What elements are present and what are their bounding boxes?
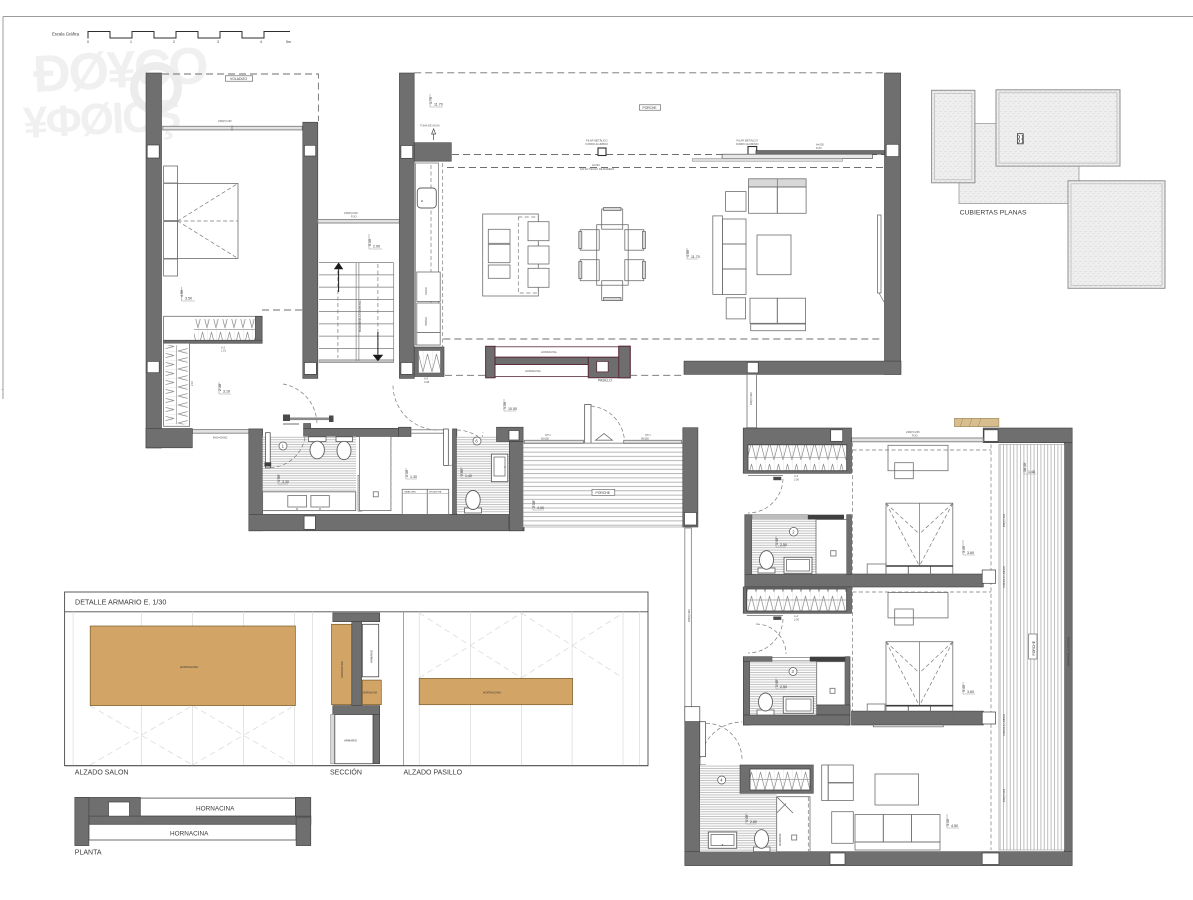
svg-text:0: 0 — [87, 40, 89, 44]
svg-text:ALZADO PASILLO: ALZADO PASILLO — [404, 770, 463, 777]
svg-text:230(P)=002: 230(P)=002 — [1003, 513, 1006, 527]
svg-text:2.50: 2.50 — [780, 543, 787, 547]
svg-text:BARANDILLA CRISTAL: BARANDILLA CRISTAL — [358, 300, 362, 332]
svg-text:230(P)=200: 230(P)=200 — [344, 211, 358, 215]
svg-text:1.30: 1.30 — [503, 402, 507, 409]
svg-text:DETALLE ARMARIO E. 1/30: DETALLE ARMARIO E. 1/30 — [75, 598, 166, 607]
svg-text:5.10: 5.10 — [368, 239, 372, 246]
svg-text:HORNACINA: HORNACINA — [340, 661, 344, 678]
svg-text:2.00: 2.00 — [373, 245, 380, 249]
svg-text:PASILLO: PASILLO — [598, 379, 612, 383]
svg-text:BARANDILLA CRISTAL: BARANDILLA CRISTAL — [1067, 636, 1071, 666]
svg-text:1.30: 1.30 — [410, 475, 417, 479]
svg-text:1.10: 1.10 — [221, 349, 227, 353]
svg-text:TOMA DE AGUA: TOMA DE AGUA — [420, 124, 440, 128]
svg-text:230(P)=002: 230(P)=002 — [1003, 788, 1006, 802]
svg-text:0.48: 0.48 — [424, 380, 430, 384]
svg-text:HORNACINA: HORNACINA — [363, 692, 378, 695]
svg-text:1.48: 1.48 — [1028, 470, 1035, 474]
svg-text:4: 4 — [260, 40, 262, 44]
svg-text:230(P)=110: 230(P)=110 — [750, 391, 753, 405]
svg-text:2.00: 2.00 — [794, 617, 800, 621]
svg-text:PORCHE: PORCHE — [596, 491, 611, 495]
svg-text:PILAR METÁLICO: PILAR METÁLICO — [586, 139, 607, 143]
svg-text:60/150: 60/150 — [541, 436, 549, 440]
svg-text:2.80: 2.80 — [750, 820, 757, 824]
svg-text:3.10: 3.10 — [946, 819, 950, 826]
svg-text:A-4: A-4 — [794, 614, 799, 618]
svg-text:3.40: 3.40 — [962, 546, 966, 553]
svg-text:Escala Gráfica: Escala Gráfica — [52, 32, 80, 37]
svg-text:FORRO ALUMINIO: FORRO ALUMINIO — [586, 142, 608, 146]
svg-text:ARMARIO: ARMARIO — [370, 649, 374, 663]
svg-text:1.40: 1.40 — [775, 680, 779, 687]
svg-text:1.40: 1.40 — [465, 474, 472, 478]
svg-text:FIJO: FIJO — [912, 433, 918, 437]
svg-text:BH1=60/002: BH1=60/002 — [213, 436, 228, 440]
svg-text:FORRO ALUMINIO: FORRO ALUMINIO — [1003, 714, 1006, 736]
svg-text:HORNACINA: HORNACINA — [525, 369, 541, 373]
svg-text:MAMPARA: MAMPARA — [779, 833, 782, 846]
svg-text:LAVADORA: LAVADORA — [404, 490, 416, 493]
svg-text:11.70: 11.70 — [434, 103, 443, 107]
svg-text:4.50: 4.50 — [951, 824, 958, 828]
svg-text:2.80: 2.80 — [460, 469, 464, 476]
svg-text:HORNACINA: HORNACINA — [170, 831, 209, 838]
svg-text:5m: 5m — [286, 40, 291, 44]
svg-text:11.70: 11.70 — [691, 255, 700, 259]
svg-text:PORCHE: PORCHE — [643, 106, 658, 110]
svg-text:FORRO ALUMINIO: FORRO ALUMINIO — [736, 142, 758, 146]
svg-text:3.40: 3.40 — [962, 685, 966, 692]
svg-text:3: 3 — [217, 40, 219, 44]
svg-text:HORNACINA: HORNACINA — [180, 665, 198, 669]
svg-text:230(P)=205: 230(P)=205 — [906, 430, 920, 434]
svg-text:ARMARIO: ARMARIO — [344, 739, 358, 743]
svg-text:PLANTA: PLANTA — [75, 850, 102, 857]
svg-text:FRIGO: FRIGO — [425, 287, 428, 295]
svg-text:2: 2 — [173, 40, 175, 44]
svg-text:2.00: 2.00 — [794, 477, 800, 481]
svg-text:SECADORA: SECADORA — [429, 490, 442, 493]
svg-text:—: — — [1, 388, 4, 391]
svg-text:HORNACINA: HORNACINA — [541, 350, 557, 354]
svg-text:4.50: 4.50 — [180, 290, 184, 297]
svg-text:VOLADIZO: VOLADIZO — [230, 77, 248, 81]
svg-text:1.40: 1.40 — [745, 815, 749, 822]
svg-text:3.60: 3.60 — [967, 690, 974, 694]
svg-text:PILAR METÁLICO: PILAR METÁLICO — [737, 139, 758, 143]
svg-text:2.10: 2.10 — [190, 380, 194, 386]
svg-text:HORNACINA: HORNACINA — [483, 691, 501, 695]
svg-text:ALZADO SALON: ALZADO SALON — [75, 770, 129, 777]
svg-text:230(A)=110: 230(A)=110 — [688, 608, 691, 622]
svg-text:PORCHE: PORCHE — [1032, 640, 1036, 655]
svg-text:2.10: 2.10 — [405, 470, 409, 477]
svg-text:FORRO ALUMINIO: FORRO ALUMINIO — [1003, 566, 1006, 588]
svg-text:90/150: 90/150 — [641, 436, 649, 440]
svg-text:1.50: 1.50 — [277, 475, 281, 482]
svg-text:2.18: 2.18 — [532, 501, 536, 508]
svg-text:1.70: 1.70 — [429, 97, 433, 104]
svg-text:2.50: 2.50 — [780, 685, 787, 689]
svg-text:FALSO TECHO DE MADERA: FALSO TECHO DE MADERA — [580, 167, 615, 171]
svg-text:3.50: 3.50 — [185, 297, 192, 301]
svg-text:CUBIERTAS PLANAS: CUBIERTAS PLANAS — [960, 210, 1027, 217]
svg-text:4.00: 4.00 — [537, 506, 544, 510]
svg-text:1.40: 1.40 — [775, 538, 779, 545]
svg-text:FIJO: FIJO — [351, 214, 357, 218]
svg-text:FIJO: FIJO — [816, 146, 822, 150]
svg-text:18.10: 18.10 — [1023, 463, 1027, 472]
svg-text:230(P)=160: 230(P)=160 — [218, 119, 232, 123]
svg-text:3.60: 3.60 — [967, 551, 974, 555]
svg-text:4.50: 4.50 — [686, 250, 690, 257]
svg-text:3.10: 3.10 — [223, 390, 230, 394]
svg-text:10.50: 10.50 — [508, 407, 517, 411]
svg-text:H=205: H=205 — [816, 143, 824, 147]
svg-text:HORNO: HORNO — [425, 317, 428, 326]
svg-text:2.18: 2.18 — [218, 384, 222, 391]
svg-text:HORNACINA: HORNACINA — [196, 806, 235, 813]
svg-text:A-3: A-3 — [794, 474, 799, 478]
svg-text:1: 1 — [130, 40, 132, 44]
svg-text:3.30: 3.30 — [282, 480, 289, 484]
svg-text:SECCIÓN: SECCIÓN — [330, 768, 362, 777]
svg-text:H=240: H=240 — [592, 163, 600, 167]
